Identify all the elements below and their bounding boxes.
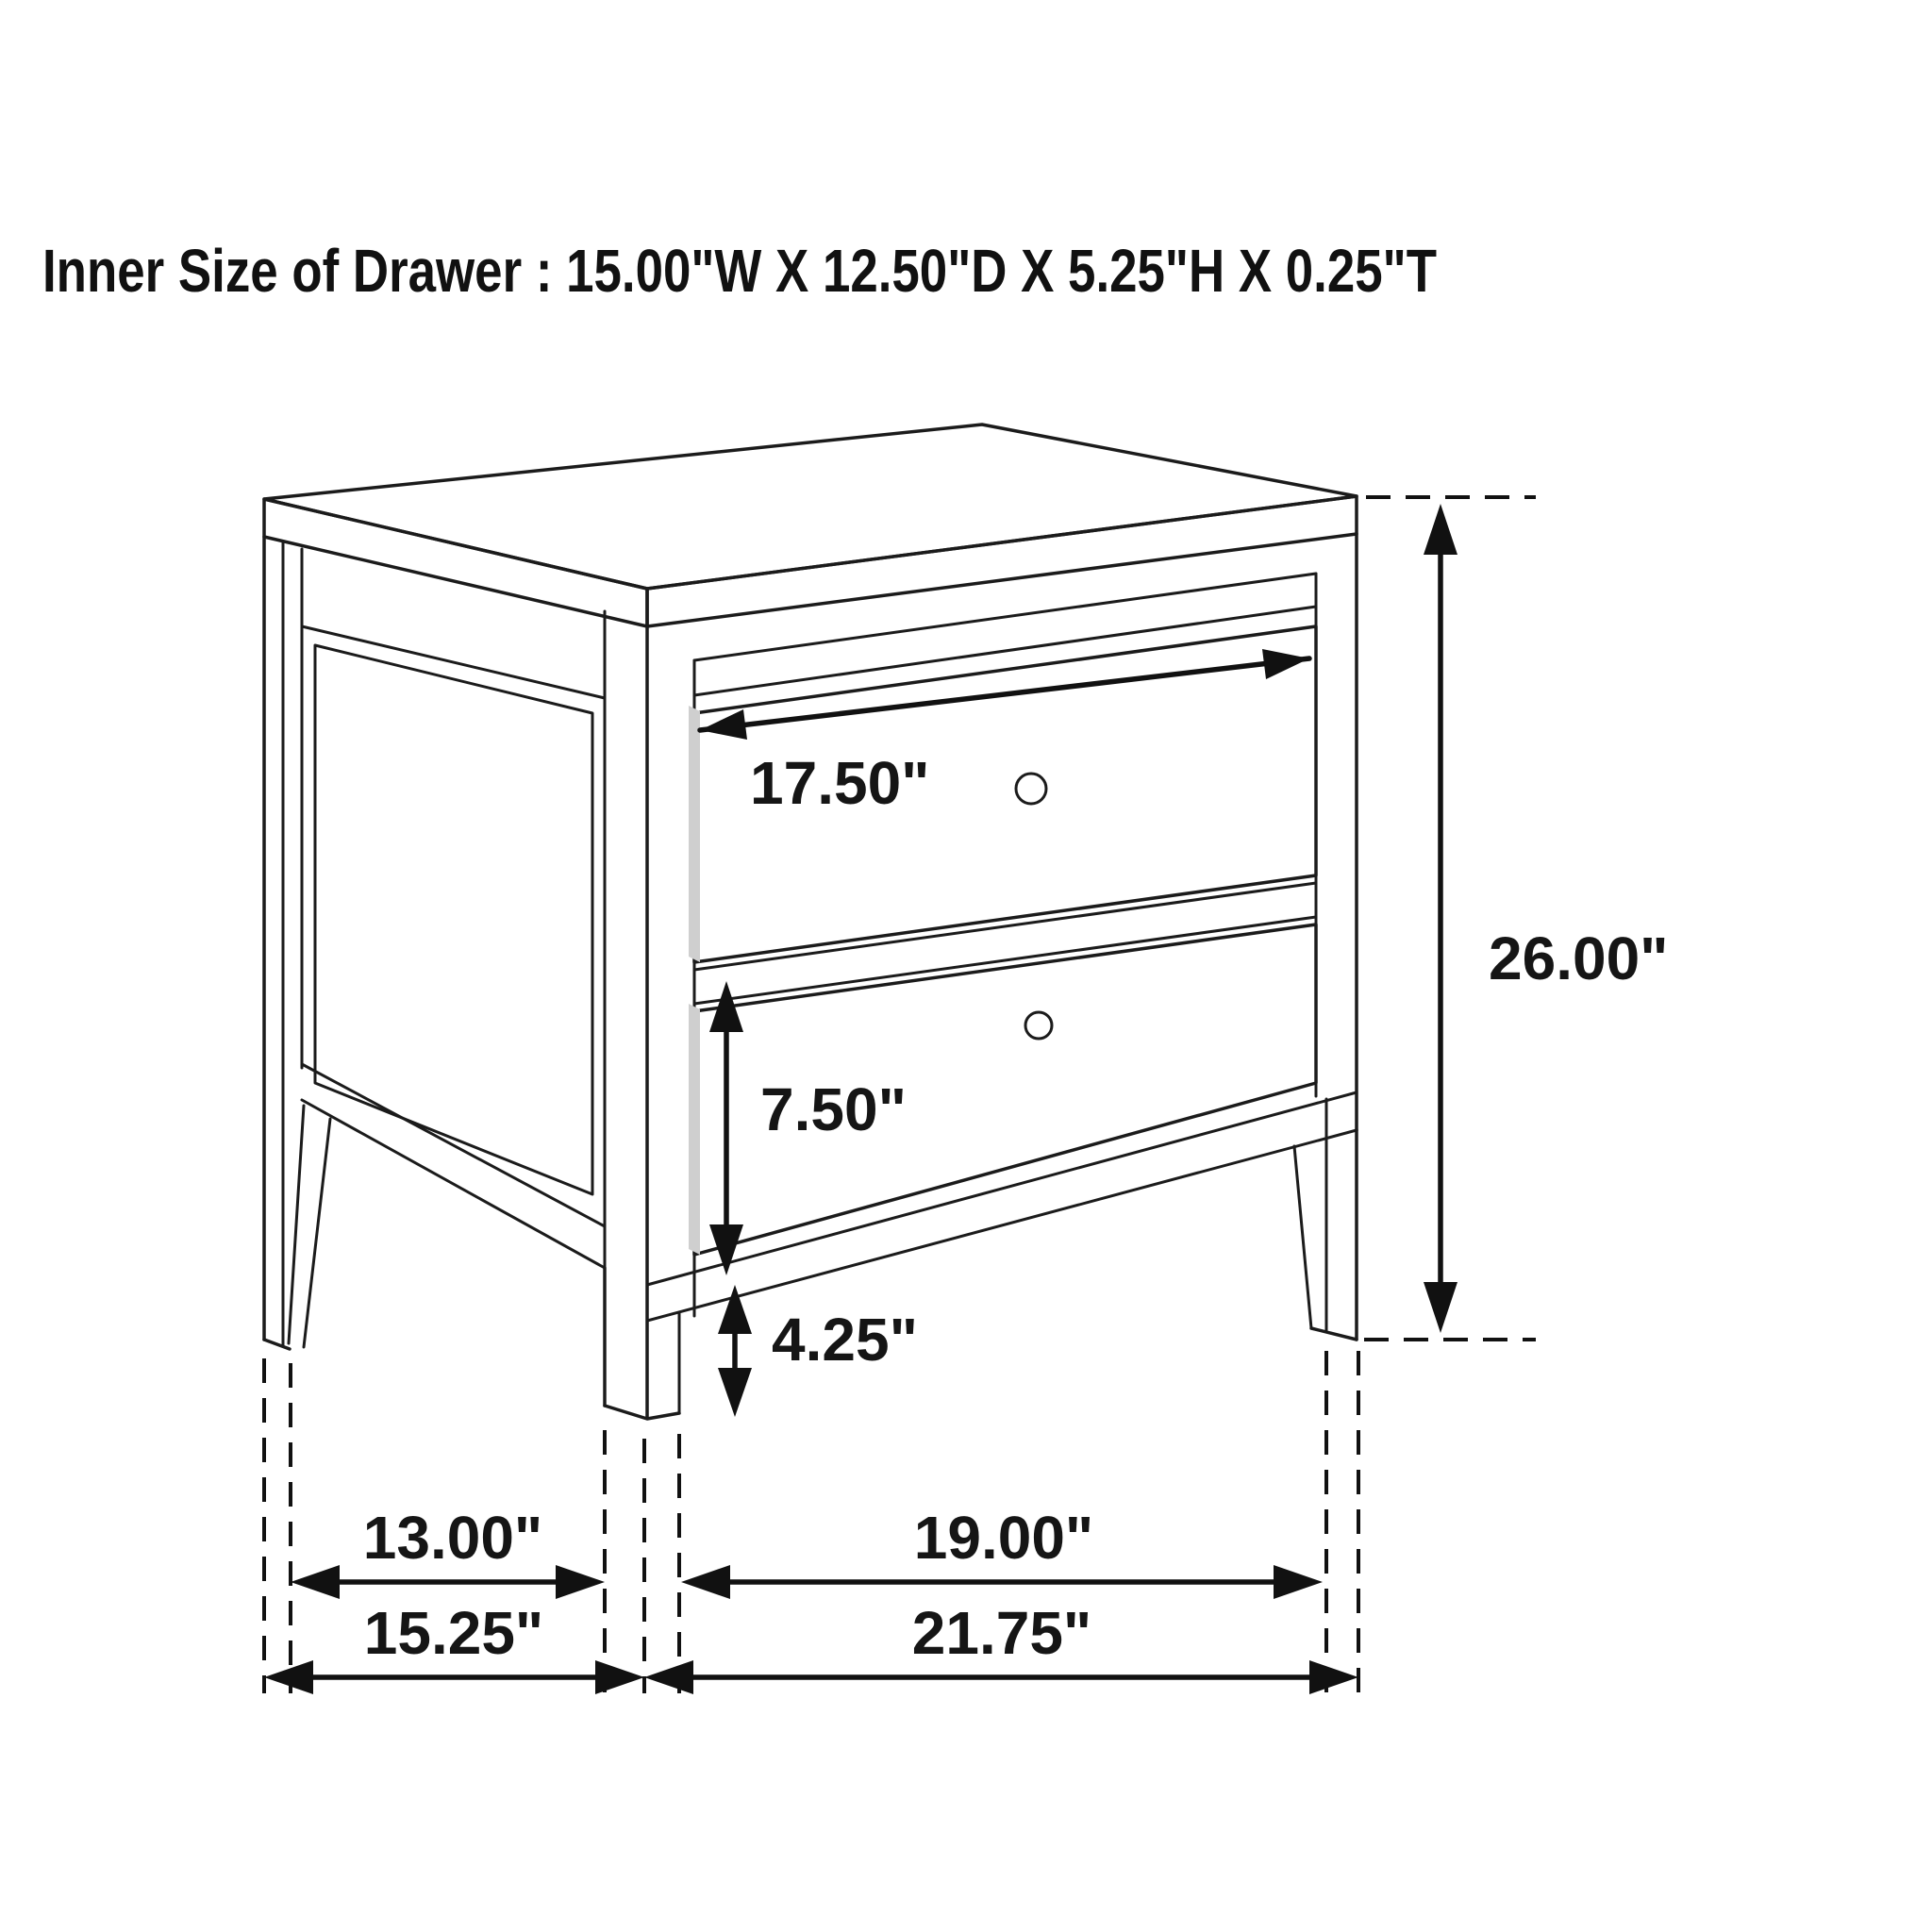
dim-label-15-25: 15.25": [364, 1599, 544, 1667]
drawer-1-edge-shadow: [689, 706, 700, 962]
nightstand-drawing: [264, 425, 1357, 1419]
dim-label-17-50: 17.50": [750, 749, 930, 817]
dim-overall-width: 21.75": [644, 1599, 1358, 1694]
dim-inner-depth: 13.00": [291, 1504, 605, 1599]
diagram-page: Inner Size of Drawer : 15.00"W X 12.50"D…: [0, 0, 1932, 1932]
leg-back-left-taper-1: [289, 1106, 304, 1343]
dim-floor-clearance: 4.25": [718, 1285, 918, 1417]
dim-label-4-25: 4.25": [772, 1306, 918, 1374]
leg-front-left-bottom: [605, 1406, 679, 1419]
dim-label-26-00: 26.00": [1489, 924, 1669, 992]
dim-label-13-00: 13.00": [363, 1504, 543, 1572]
tabletop-top-face: [264, 425, 1357, 589]
drawer-2-edge-shadow: [689, 1004, 700, 1255]
tabletop-front-face: [647, 496, 1357, 626]
dim-inner-width: 19.00": [681, 1504, 1323, 1599]
leg-front-right-bottom: [1311, 1328, 1357, 1340]
dim-overall-height: 26.00": [1424, 504, 1669, 1333]
page-title: Inner Size of Drawer : 15.00"W X 12.50"D…: [42, 237, 1437, 305]
dim-label-21-75: 21.75": [912, 1599, 1092, 1667]
leg-front-right-taper: [1294, 1146, 1311, 1328]
dim-label-19-00: 19.00": [914, 1504, 1094, 1572]
dim-overall-depth: 15.25": [264, 1599, 644, 1694]
diagram-canvas: Inner Size of Drawer : 15.00"W X 12.50"D…: [0, 0, 1932, 1932]
leg-back-left-taper-2: [304, 1119, 330, 1347]
tabletop-side-face: [264, 499, 647, 626]
leg-back-left-bottom: [264, 1340, 290, 1349]
dim-label-7-50: 7.50": [760, 1075, 907, 1143]
side-recessed-panel: [315, 645, 592, 1194]
